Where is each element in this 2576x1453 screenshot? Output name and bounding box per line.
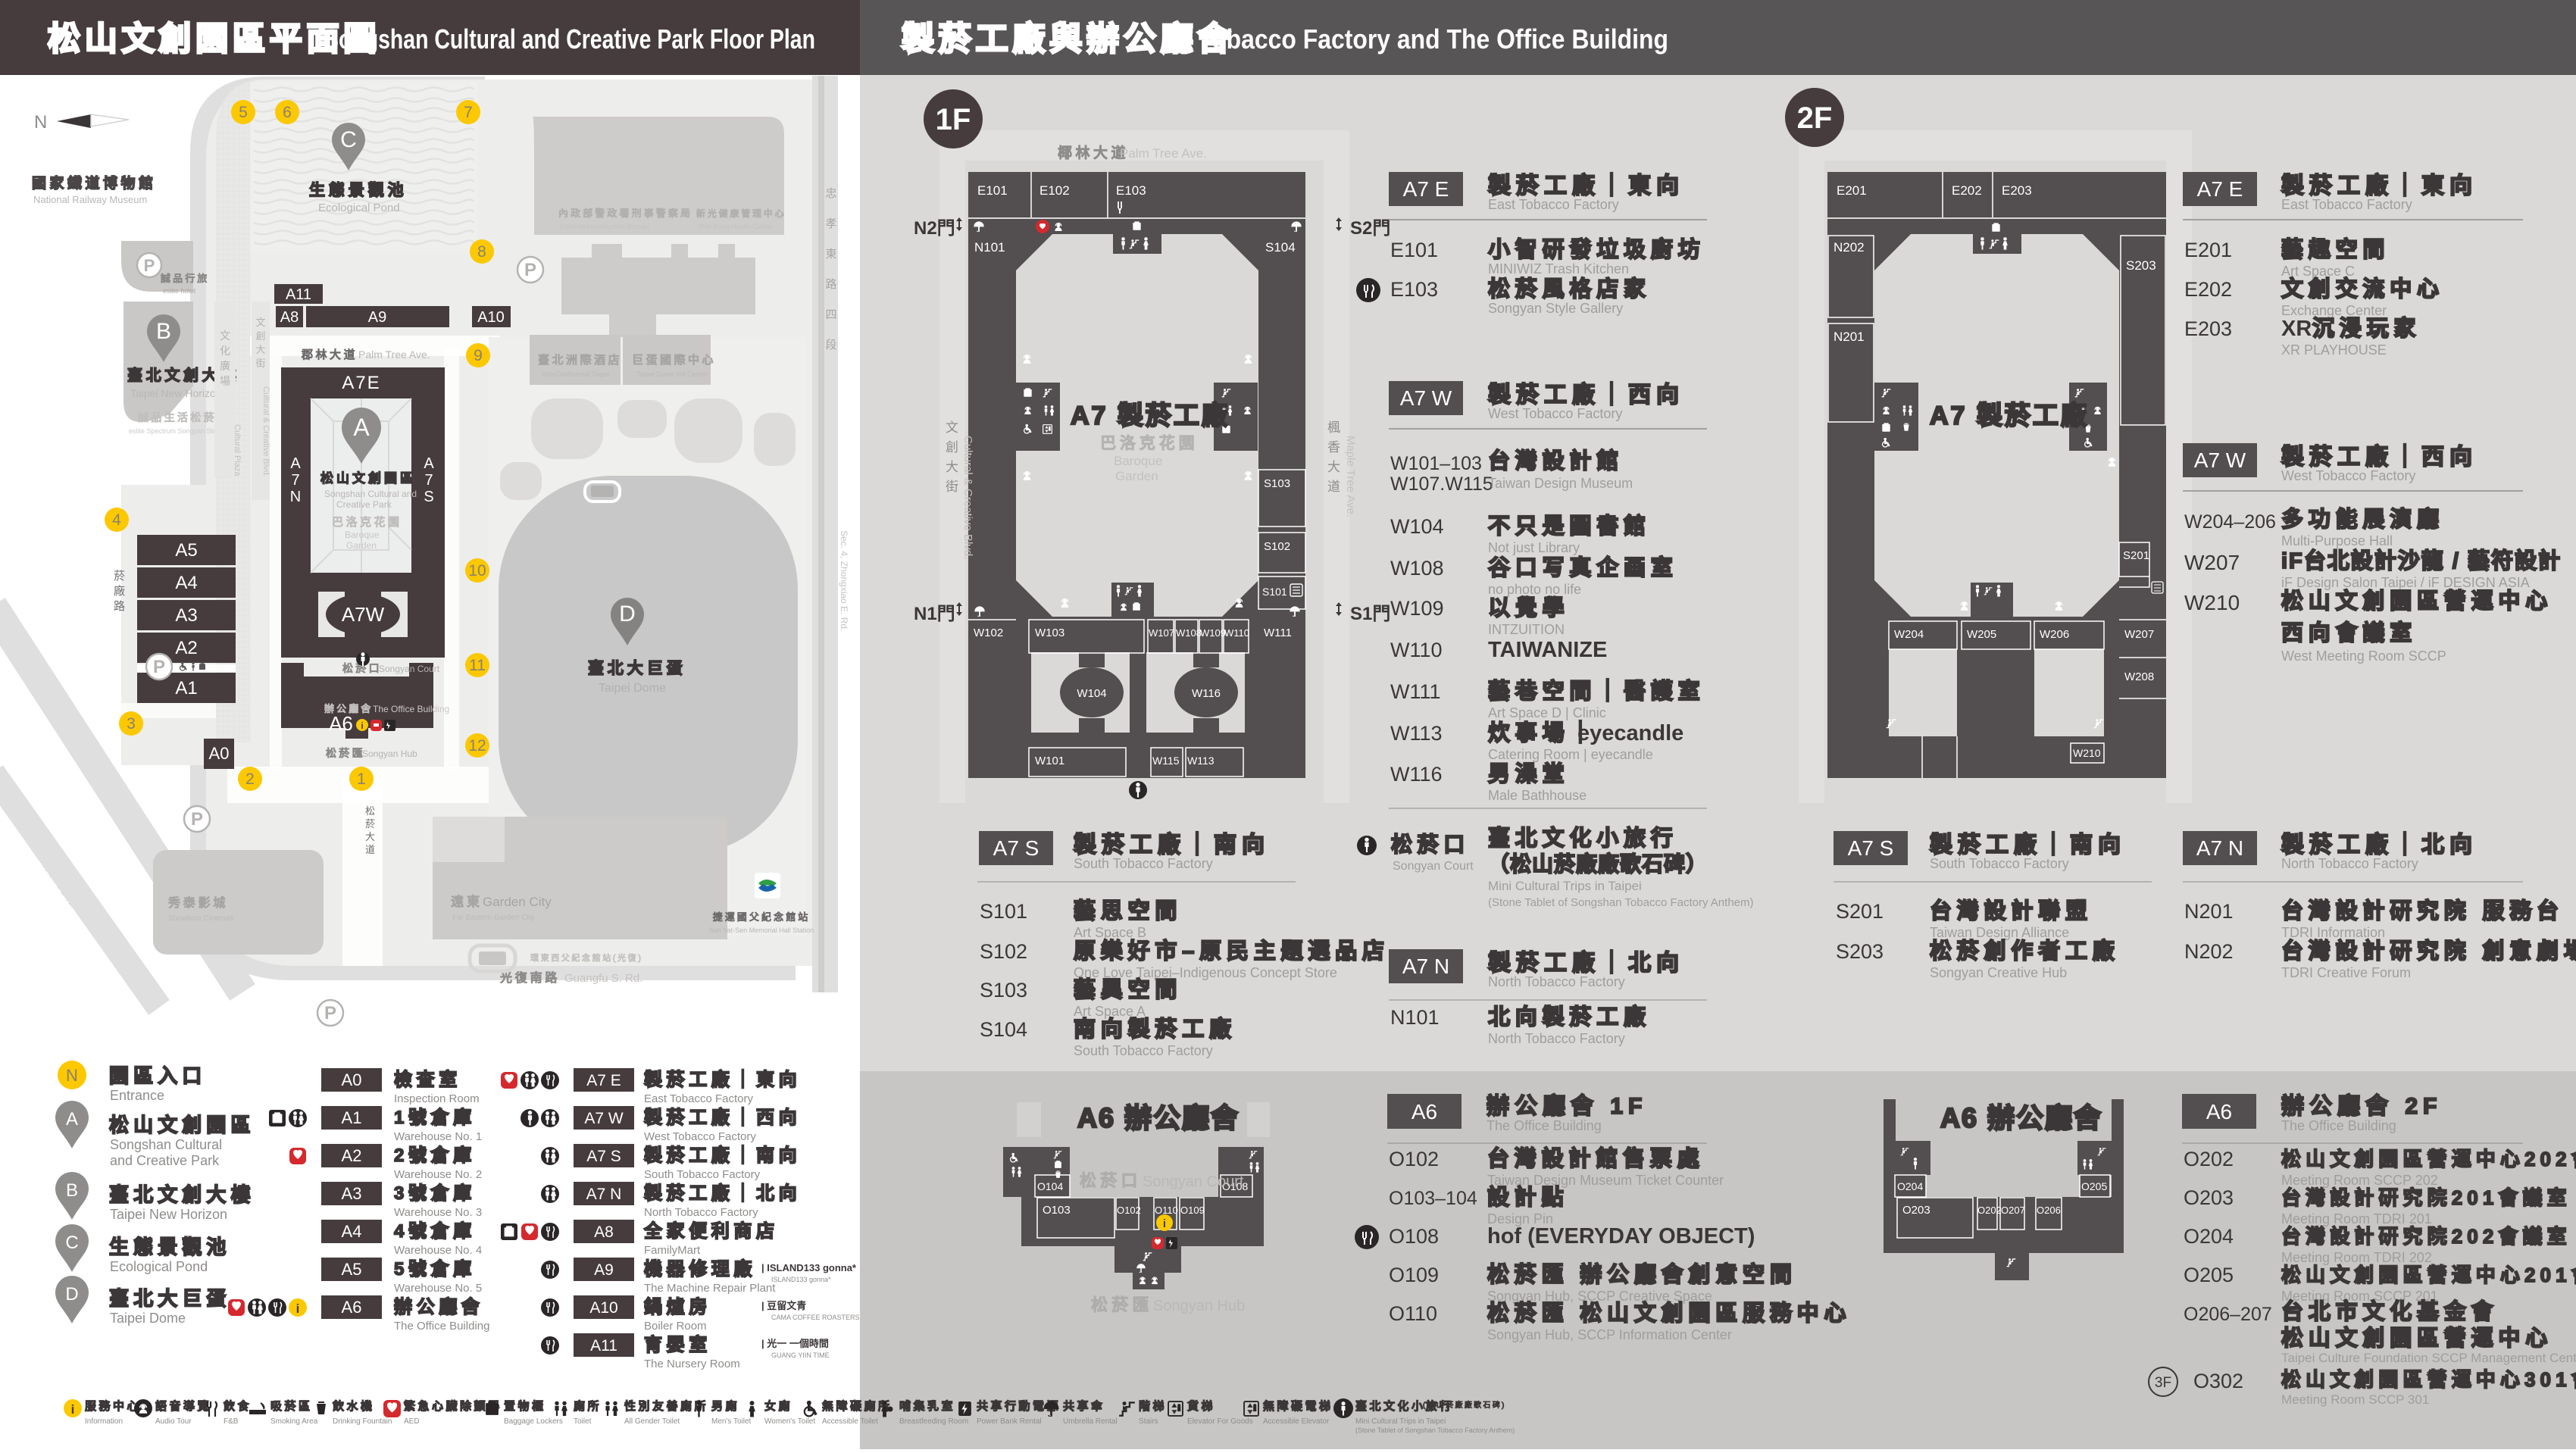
svg-text:遠東: 遠東 — [451, 895, 483, 909]
svg-text:Showtime Cinemas: Showtime Cinemas — [168, 914, 233, 923]
svg-text:Accessible Toilet: Accessible Toilet — [822, 1417, 878, 1426]
svg-text:O110: O110 — [1389, 1302, 1437, 1325]
svg-text:O103: O103 — [1043, 1204, 1071, 1217]
svg-text:eslite Spectrum Songyan Store: eslite Spectrum Songyan Store — [129, 427, 223, 435]
svg-text:園區入口: 園區入口 — [109, 1064, 206, 1087]
svg-text:W205: W205 — [1967, 628, 1996, 641]
svg-text:Audio Tour: Audio Tour — [155, 1417, 192, 1426]
svg-text:松山文創園區營運中心202會議室: 松山文創園區營運中心202會議室 — [2281, 1148, 2576, 1170]
svg-text:飲食: 飲食 — [223, 1399, 252, 1413]
svg-text:i: i — [296, 1301, 300, 1316]
svg-text:A7 S: A7 S — [1848, 836, 1894, 860]
svg-text:O207: O207 — [2001, 1205, 2025, 1216]
svg-text:臺北文化小旅行: 臺北文化小旅行 — [1488, 825, 1678, 851]
svg-text:松菸匯: 松菸匯 — [1091, 1295, 1153, 1314]
svg-text:巨蛋國際中心: 巨蛋國際中心 — [632, 354, 716, 367]
svg-text:松山文創園區營運中心: 松山文創園區營運中心 — [2281, 1325, 2553, 1351]
svg-text:Warehouse No. 3: Warehouse No. 3 — [394, 1206, 482, 1219]
svg-text:製菸工廠｜南向: 製菸工廠｜南向 — [1930, 832, 2126, 858]
svg-text:Sec. 4, Zhongxiao E. Rd.: Sec. 4, Zhongxiao E. Rd. — [839, 530, 849, 631]
svg-text:S203: S203 — [2126, 258, 2156, 273]
svg-text:W101–103: W101–103 — [1390, 453, 1482, 474]
svg-text:XR: XR — [2281, 317, 2312, 341]
svg-text:設計點: 設計點 — [1487, 1184, 1568, 1210]
svg-text:捷運國父紀念館站: 捷運國父紀念館站 — [713, 911, 811, 923]
svg-text:全家便利商店: 全家便利商店 — [643, 1220, 779, 1242]
svg-text:路: 路 — [114, 600, 125, 613]
svg-text:松菸匯 松山文創園區服務中心: 松菸匯 松山文創園區服務中心 — [1487, 1300, 1851, 1326]
svg-text:W109: W109 — [1200, 627, 1226, 639]
svg-text:E201: E201 — [1837, 183, 1867, 198]
svg-text:Stairs: Stairs — [1139, 1417, 1158, 1426]
svg-text:North Tobacco Factory: North Tobacco Factory — [1488, 1031, 1625, 1046]
svg-text:秀泰影城: 秀泰影城 — [168, 896, 228, 910]
svg-text:(松山菸廠廠歌石碑): (松山菸廠廠歌石碑) — [1423, 1400, 1506, 1410]
svg-text:A6: A6 — [1411, 1100, 1437, 1123]
svg-text:Meeting Room TDRI 201: Meeting Room TDRI 201 — [2281, 1211, 2432, 1226]
svg-text:W110: W110 — [1390, 639, 1443, 661]
svg-text:Songshan Cultural and Creative: Songshan Cultural and Creative Park Floo… — [324, 23, 815, 55]
svg-text:O109: O109 — [1180, 1205, 1205, 1216]
svg-text:Men's Toilet: Men's Toilet — [711, 1417, 752, 1426]
svg-text:Songyan Court: Songyan Court — [379, 664, 440, 674]
svg-text:無障礙電梯: 無障礙電梯 — [1263, 1399, 1333, 1413]
svg-text:A5: A5 — [342, 1260, 362, 1279]
svg-text:E202: E202 — [2184, 278, 2232, 301]
svg-text:Songyan Creative Hub: Songyan Creative Hub — [1930, 965, 2067, 980]
svg-text:東: 東 — [825, 248, 836, 261]
svg-text:O205: O205 — [2081, 1180, 2107, 1192]
svg-text:S103: S103 — [1264, 477, 1290, 490]
svg-text:9: 9 — [474, 347, 483, 364]
svg-text:A0: A0 — [342, 1070, 362, 1089]
svg-text:松山文創園區: 松山文創園區 — [320, 470, 416, 486]
svg-text:台灣設計研究院202會議室: 台灣設計研究院202會議室 — [2281, 1225, 2571, 1248]
svg-text:P: P — [144, 256, 155, 275]
svg-text:O102: O102 — [1117, 1205, 1141, 1216]
svg-text:多功能展演廳: 多功能展演廳 — [2281, 506, 2444, 532]
svg-text:Drinking Fountain: Drinking Fountain — [333, 1417, 392, 1426]
svg-text:O103–104: O103–104 — [1389, 1188, 1477, 1209]
svg-text:A11: A11 — [590, 1337, 617, 1355]
svg-text:Taipei New Horizon: Taipei New Horizon — [130, 387, 222, 399]
svg-text:O204: O204 — [1897, 1180, 1923, 1192]
svg-text:O206: O206 — [2037, 1205, 2061, 1216]
svg-text:W111: W111 — [1264, 627, 1292, 639]
svg-text:大: 大 — [365, 831, 375, 842]
svg-text:7: 7 — [464, 104, 473, 121]
svg-text:i: i — [361, 720, 363, 731]
svg-text:Toilet: Toilet — [574, 1417, 592, 1426]
svg-text:2號倉庫: 2號倉庫 — [394, 1145, 476, 1166]
svg-text:2F: 2F — [1797, 102, 1833, 135]
svg-text:TDRI Information: TDRI Information — [2281, 925, 2385, 940]
svg-text:楓: 楓 — [1327, 420, 1340, 435]
svg-text:iF Design Salon Taipei / iF DE: iF Design Salon Taipei / iF DESIGN ASIA — [2281, 575, 2530, 590]
svg-text:製菸工廠｜南向: 製菸工廠｜南向 — [1074, 832, 1270, 858]
svg-text:Cultural Plaza: Cultural Plaza — [233, 424, 242, 477]
svg-text:S2門: S2門 — [1350, 218, 1390, 239]
svg-text:N1門: N1門 — [914, 604, 955, 624]
svg-text:Accessible Elevator: Accessible Elevator — [1263, 1417, 1330, 1426]
svg-text:Guangfu S. Rd.: Guangfu S. Rd. — [564, 972, 642, 985]
svg-text:C: C — [65, 1233, 78, 1253]
svg-text:創: 創 — [255, 330, 265, 342]
svg-text:W109: W109 — [1390, 597, 1444, 620]
svg-text:菸: 菸 — [114, 570, 125, 583]
svg-text:製菸工廠｜東向: 製菸工廠｜東向 — [1488, 173, 1684, 198]
svg-text:O108: O108 — [1389, 1225, 1439, 1248]
svg-text:四: 四 — [825, 308, 836, 321]
svg-text:A1: A1 — [175, 678, 197, 698]
svg-text:East Tobacco Factory: East Tobacco Factory — [644, 1092, 753, 1105]
svg-text:D: D — [65, 1284, 78, 1305]
svg-text:大: 大 — [255, 344, 265, 355]
svg-text:檢查室: 檢查室 — [394, 1069, 461, 1090]
svg-text:谷口写真企画室: 谷口写真企画室 — [1488, 555, 1678, 580]
svg-text:松: 松 — [365, 805, 375, 817]
svg-text:eyecandle: eyecandle — [1577, 721, 1683, 745]
svg-text:光復南路: 光復南路 — [500, 971, 560, 985]
svg-text:5號倉庫: 5號倉庫 — [394, 1258, 476, 1280]
svg-text:East Tobacco Factory: East Tobacco Factory — [1488, 197, 1619, 212]
svg-text:台灣設計研究院 服務台: 台灣設計研究院 服務台 — [2281, 898, 2564, 923]
svg-text:Garden: Garden — [1115, 469, 1158, 483]
svg-text:A7 S: A7 S — [586, 1148, 621, 1165]
svg-text:W210: W210 — [2184, 591, 2240, 614]
svg-text:辦公廳舍: 辦公廳舍 — [394, 1296, 483, 1317]
svg-text:服務中心: 服務中心 — [85, 1399, 141, 1413]
svg-text:Far Eastern Garden City: Far Eastern Garden City — [452, 914, 534, 922]
svg-text:辦公廳舍 1F: 辦公廳舍 1F — [1487, 1093, 1647, 1119]
svg-text:2: 2 — [245, 770, 255, 788]
svg-text:巴洛克花園: 巴洛克花園 — [1100, 435, 1199, 452]
svg-text:TAIWANIZE: TAIWANIZE — [1488, 638, 1607, 662]
svg-text:製菸工廠｜東向: 製菸工廠｜東向 — [2281, 173, 2478, 198]
svg-text:松山文創園區營運中心201會議室: 松山文創園區營運中心201會議室 — [2281, 1264, 2576, 1286]
svg-text:Cultural & Creative Blvd.: Cultural & Creative Blvd. — [961, 436, 974, 559]
svg-text:街: 街 — [255, 358, 265, 369]
svg-text:W116: W116 — [1192, 687, 1221, 700]
svg-text:N2門: N2門 — [914, 218, 955, 239]
svg-text:N201: N201 — [2184, 900, 2234, 923]
svg-text:5: 5 — [239, 104, 248, 121]
svg-text:CAMA COFFEE ROASTERS: CAMA COFFEE ROASTERS — [771, 1314, 860, 1321]
svg-text:生態景觀池: 生態景觀池 — [109, 1236, 231, 1258]
svg-text:Mini Cultural Trips in Taipei: Mini Cultural Trips in Taipei — [1488, 879, 1642, 893]
svg-text:Meeting Room TDRI 202: Meeting Room TDRI 202 — [2281, 1250, 2432, 1265]
svg-text:A7 N: A7 N — [1402, 955, 1449, 978]
svg-text:All Gender Toilet: All Gender Toilet — [624, 1417, 680, 1426]
svg-text:W102: W102 — [974, 627, 1003, 639]
svg-text:A6: A6 — [2206, 1100, 2232, 1123]
svg-text:場: 場 — [220, 375, 230, 387]
svg-text:West Tobacco Factory: West Tobacco Factory — [2281, 468, 2415, 483]
svg-text:菸: 菸 — [365, 818, 375, 830]
svg-text:E202: E202 — [1952, 183, 1982, 198]
svg-text:W107.W115: W107.W115 — [1390, 473, 1493, 495]
svg-text:Warehouse No. 2: Warehouse No. 2 — [394, 1168, 482, 1181]
svg-text:A3: A3 — [175, 605, 197, 626]
svg-text:Entrance: Entrance — [110, 1088, 164, 1103]
svg-text:| 光一 一個時間: | 光一 一個時間 — [761, 1338, 829, 1349]
svg-text:B: B — [66, 1180, 78, 1201]
svg-text:O206–207: O206–207 — [2184, 1304, 2272, 1325]
svg-text:S102: S102 — [1264, 540, 1290, 553]
svg-text:A0: A0 — [209, 744, 230, 763]
svg-text:(Stone Tablet of Songshan Toba: (Stone Tablet of Songshan Tobacco Factor… — [1355, 1426, 1515, 1434]
svg-text:W208: W208 — [2124, 670, 2154, 683]
svg-text:Songyan Style Gallery: Songyan Style Gallery — [1488, 301, 1623, 316]
svg-text:Smoking Area: Smoking Area — [270, 1417, 318, 1426]
svg-text:A5: A5 — [175, 540, 197, 561]
svg-text:South Tobacco Factory: South Tobacco Factory — [1074, 856, 1213, 871]
svg-text:i: i — [71, 1402, 75, 1417]
svg-text:O205: O205 — [2184, 1264, 2234, 1286]
svg-text:W204–206: W204–206 — [2184, 511, 2276, 533]
svg-text:O202: O202 — [1977, 1205, 2002, 1216]
svg-text:Catering Room | eyecandle: Catering Room | eyecandle — [1488, 747, 1653, 762]
svg-text:台灣設計研究院 創意劇場: 台灣設計研究院 創意劇場 — [2281, 938, 2576, 964]
svg-text:Songshan Cultural and: Songshan Cultural and — [324, 489, 417, 499]
svg-text:Ecological Pond: Ecological Pond — [110, 1259, 208, 1274]
svg-text:S104: S104 — [1265, 240, 1296, 255]
svg-text:A1: A1 — [342, 1108, 362, 1127]
svg-text:Garden City: Garden City — [483, 895, 552, 909]
svg-text:B: B — [156, 319, 171, 344]
svg-text:O110: O110 — [1155, 1205, 1178, 1216]
svg-text:North Tobacco Factory: North Tobacco Factory — [2281, 856, 2418, 871]
svg-text:National Railway Museum: National Railway Museum — [33, 194, 147, 205]
svg-text:West Tobacco Factory: West Tobacco Factory — [1488, 406, 1622, 421]
svg-text:製菸工廠｜北向: 製菸工廠｜北向 — [2281, 832, 2478, 858]
svg-text:O203: O203 — [2184, 1186, 2234, 1209]
svg-text:A8: A8 — [594, 1223, 614, 1241]
svg-text:E102: E102 — [1039, 183, 1070, 198]
svg-text:7: 7 — [424, 472, 433, 489]
svg-text:貨梯: 貨梯 — [1187, 1399, 1215, 1413]
svg-text:新光健康管理中心: 新光健康管理中心 — [696, 208, 786, 219]
svg-text:大: 大 — [1327, 460, 1340, 474]
svg-text:A: A — [290, 455, 301, 472]
svg-text:A7 製菸工廠: A7 製菸工廠 — [1071, 401, 1230, 430]
svg-text:文創交流中心: 文創交流中心 — [2281, 276, 2444, 302]
svg-text:文: 文 — [946, 420, 958, 435]
svg-text:A10: A10 — [589, 1299, 617, 1317]
svg-text:E101: E101 — [977, 183, 1008, 198]
svg-text:A11: A11 — [286, 286, 311, 303]
svg-text:製菸工廠｜東向: 製菸工廠｜東向 — [644, 1069, 801, 1090]
svg-text:Baroque: Baroque — [345, 530, 380, 540]
svg-text:製菸工廠｜北向: 製菸工廠｜北向 — [644, 1183, 801, 1204]
svg-text:Art Space A: Art Space A — [1074, 1004, 1146, 1019]
svg-text:hof (EVERYDAY OBJECT): hof (EVERYDAY OBJECT) — [1487, 1224, 1755, 1248]
svg-text:W207: W207 — [2184, 551, 2240, 574]
svg-text:Boiler Room: Boiler Room — [644, 1320, 707, 1333]
svg-text:N101: N101 — [1390, 1006, 1440, 1029]
svg-text:A7 W: A7 W — [584, 1110, 624, 1127]
svg-text:The Office Building: The Office Building — [394, 1320, 489, 1333]
svg-text:W113: W113 — [1390, 722, 1443, 745]
svg-text:化: 化 — [220, 345, 230, 357]
svg-text:8: 8 — [477, 243, 486, 261]
svg-text:置物櫃: 置物櫃 — [504, 1399, 546, 1413]
svg-text:W110: W110 — [1224, 627, 1249, 639]
svg-text:台北市文化基金會: 台北市文化基金會 — [2281, 1298, 2498, 1324]
svg-text:臺北文創大樓: 臺北文創大樓 — [109, 1183, 255, 1206]
svg-text:Warehouse No. 5: Warehouse No. 5 — [394, 1282, 482, 1295]
svg-text:製菸工廠｜南向: 製菸工廠｜南向 — [644, 1145, 801, 1166]
svg-text:3號倉庫: 3號倉庫 — [394, 1183, 476, 1204]
svg-text:Breastfeeding Room: Breastfeeding Room — [899, 1417, 968, 1426]
svg-text:4號倉庫: 4號倉庫 — [394, 1220, 476, 1242]
svg-text:Mini Cultural Trips in Taipei: Mini Cultural Trips in Taipei — [1355, 1417, 1446, 1426]
svg-text:Taipei Dome: Taipei Dome — [599, 682, 666, 695]
svg-text:原樂好市–原民主題選品店: 原樂好市–原民主題選品店 — [1074, 938, 1390, 964]
svg-text:共享傘: 共享傘 — [1063, 1399, 1105, 1413]
svg-text:West Meeting Room SCCP: West Meeting Room SCCP — [2281, 648, 2446, 664]
svg-text:A7W: A7W — [342, 603, 385, 626]
svg-text:廣: 廣 — [220, 360, 230, 372]
svg-text:10: 10 — [468, 562, 486, 580]
svg-text:大: 大 — [946, 460, 958, 474]
svg-text:i: i — [1163, 1217, 1166, 1230]
svg-text:Songshan Cultural: Songshan Cultural — [110, 1137, 222, 1152]
svg-text:O102: O102 — [1389, 1148, 1439, 1170]
svg-text:W210: W210 — [2073, 747, 2101, 759]
svg-text:A: A — [353, 414, 370, 441]
svg-text:松菸風格店家: 松菸風格店家 — [1488, 276, 1651, 302]
svg-text:S203: S203 — [1836, 940, 1884, 963]
svg-text:Songyan Hub: Songyan Hub — [1153, 1298, 1245, 1314]
svg-text:and Creative Park: and Creative Park — [110, 1153, 220, 1168]
svg-text:藝思空間: 藝思空間 — [1074, 898, 1182, 923]
svg-text:E201: E201 — [2184, 239, 2232, 261]
svg-text:S103: S103 — [980, 979, 1027, 1001]
svg-text:The Nursery Room: The Nursery Room — [644, 1358, 740, 1370]
svg-text:W108: W108 — [1390, 557, 1444, 580]
svg-text:製菸工廠｜北向: 製菸工廠｜北向 — [1488, 950, 1684, 976]
svg-text:台灣設計研究院201會議室: 台灣設計研究院201會議室 — [2281, 1186, 2571, 1209]
svg-text:松菸口: 松菸口 — [1391, 833, 1470, 856]
svg-text:P: P — [191, 809, 203, 830]
svg-text:GUANG YIIN TIME: GUANG YIIN TIME — [771, 1351, 830, 1359]
svg-text:S1門: S1門 — [1350, 604, 1390, 624]
svg-text:West Tobacco Factory: West Tobacco Factory — [644, 1130, 756, 1143]
svg-text:W207: W207 — [2124, 628, 2154, 641]
svg-text:P: P — [524, 260, 536, 280]
svg-text:Sun Yat-Sen Memorial Hall Stat: Sun Yat-Sen Memorial Hall Station — [709, 926, 814, 934]
svg-text:N: N — [34, 112, 47, 133]
svg-text:S101: S101 — [980, 900, 1027, 923]
svg-text:文: 文 — [255, 317, 265, 328]
svg-text:A7 E: A7 E — [2197, 177, 2243, 201]
svg-text:Songyan Court: Songyan Court — [1393, 860, 1474, 873]
svg-text:廠: 廠 — [114, 584, 125, 598]
svg-text:生態景觀池: 生態景觀池 — [309, 181, 408, 199]
svg-text:段: 段 — [825, 339, 836, 352]
svg-text:道: 道 — [1327, 480, 1340, 494]
svg-text:AED: AED — [404, 1417, 420, 1426]
svg-text:North Tobacco Factory: North Tobacco Factory — [1488, 974, 1625, 989]
svg-text:A9: A9 — [368, 309, 386, 326]
svg-text:O109: O109 — [1389, 1264, 1439, 1286]
svg-text:E203: E203 — [2002, 183, 2032, 198]
svg-text:The Office Building: The Office Building — [1487, 1118, 1602, 1133]
svg-text:Baggage Lockers: Baggage Lockers — [504, 1417, 563, 1426]
svg-text:製菸工廠｜西向: 製菸工廠｜西向 — [644, 1107, 801, 1128]
svg-text:P: P — [324, 1003, 336, 1023]
svg-text:Songyan Hub: Songyan Hub — [362, 748, 417, 759]
svg-text:South Tobacco Factory: South Tobacco Factory — [644, 1168, 761, 1181]
svg-text:MINIWIZ Trash Kitchen: MINIWIZ Trash Kitchen — [1488, 261, 1629, 277]
svg-text:Shin Kong Health Center: Shin Kong Health Center — [698, 223, 774, 230]
svg-text:S101: S101 — [1262, 586, 1287, 598]
svg-text:Maple Tree Ave.: Maple Tree Ave. — [1344, 436, 1357, 517]
svg-text:N: N — [66, 1066, 78, 1085]
svg-text:North Tobacco Factory: North Tobacco Factory — [644, 1206, 758, 1219]
svg-text:Warehouse No. 4: Warehouse No. 4 — [394, 1244, 482, 1257]
svg-text:A6 辦公廳舍: A6 辦公廳舍 — [1077, 1102, 1240, 1133]
svg-text:W108: W108 — [1176, 627, 1202, 639]
svg-text:忠: 忠 — [825, 187, 836, 200]
svg-text:W115: W115 — [1152, 755, 1180, 767]
svg-text:西向會議室: 西向會議室 — [2281, 620, 2417, 645]
svg-text:N201: N201 — [1834, 330, 1865, 344]
svg-text:1號倉庫: 1號倉庫 — [394, 1107, 476, 1128]
svg-text:不只是圖書館: 不只是圖書館 — [1488, 513, 1651, 539]
svg-text:W116: W116 — [1390, 763, 1443, 786]
svg-text:| 豆留文青: | 豆留文青 — [761, 1300, 806, 1311]
svg-text:以覺學: 以覺學 — [1488, 595, 1569, 620]
svg-text:郡林大道: 郡林大道 — [302, 348, 358, 361]
svg-text:4: 4 — [112, 511, 121, 529]
svg-text:N: N — [290, 489, 301, 505]
svg-text:女廁: 女廁 — [764, 1399, 792, 1413]
svg-text:Art Space C: Art Space C — [2281, 264, 2355, 279]
svg-text:O204: O204 — [2184, 1225, 2234, 1248]
svg-text:製菸工廠與辦公廳舍: 製菸工廠與辦公廳舍 — [902, 20, 1234, 58]
svg-text:W101: W101 — [1035, 755, 1064, 767]
svg-text:Inspection Room: Inspection Room — [394, 1092, 480, 1105]
svg-text:INTZUITION: INTZUITION — [1488, 622, 1565, 637]
svg-text:Male Bathhouse: Male Bathhouse — [1488, 788, 1587, 803]
svg-text:A7 W: A7 W — [1400, 386, 1452, 410]
svg-text:A7 N: A7 N — [2196, 836, 2243, 860]
svg-text:W204: W204 — [1894, 628, 1924, 641]
svg-text:鍋爐房: 鍋爐房 — [644, 1296, 711, 1317]
svg-text:A3: A3 — [342, 1184, 362, 1203]
svg-text:C: C — [340, 127, 357, 152]
svg-text:O302: O302 — [2193, 1370, 2243, 1392]
svg-text:性別友善廁所: 性別友善廁所 — [624, 1399, 708, 1413]
svg-text:ISLAND133 gonna*: ISLAND133 gonna* — [771, 1276, 831, 1283]
svg-text:A7 S: A7 S — [993, 836, 1039, 860]
svg-text:A7 E: A7 E — [586, 1072, 621, 1089]
svg-text:松菸口: 松菸口 — [1080, 1171, 1142, 1190]
svg-text:W107: W107 — [1149, 627, 1174, 639]
svg-text:D: D — [619, 602, 636, 627]
svg-text:松菸匯: 松菸匯 — [326, 747, 365, 759]
svg-text:E103: E103 — [1390, 278, 1438, 301]
svg-text:no photo no life: no photo no life — [1488, 582, 1581, 597]
svg-text:12: 12 — [468, 737, 486, 755]
svg-text:製菸工廠｜西向: 製菸工廠｜西向 — [2281, 444, 2478, 470]
svg-text:街: 街 — [946, 480, 958, 494]
svg-text:Women's Toilet: Women's Toilet — [764, 1417, 815, 1426]
svg-text:語音導覽: 語音導覽 — [155, 1399, 211, 1413]
svg-text:Ecological Pond: Ecological Pond — [318, 202, 400, 214]
